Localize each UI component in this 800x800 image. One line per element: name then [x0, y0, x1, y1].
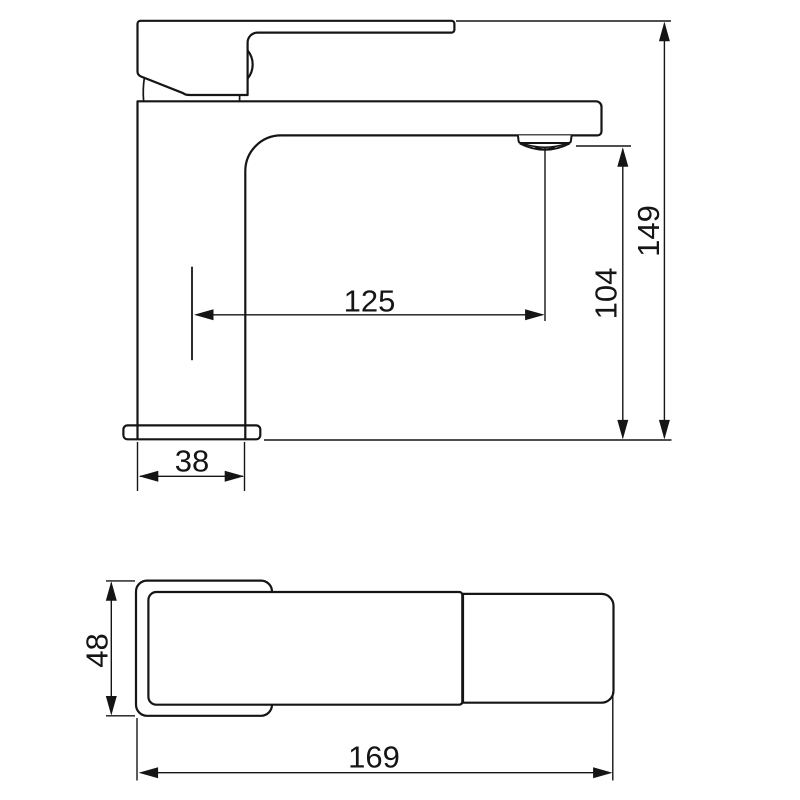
svg-text:104: 104	[589, 268, 624, 320]
svg-text:38: 38	[175, 444, 209, 479]
svg-text:169: 169	[348, 739, 400, 774]
svg-text:125: 125	[344, 284, 396, 319]
svg-text:149: 149	[631, 205, 666, 257]
svg-text:48: 48	[80, 633, 115, 667]
